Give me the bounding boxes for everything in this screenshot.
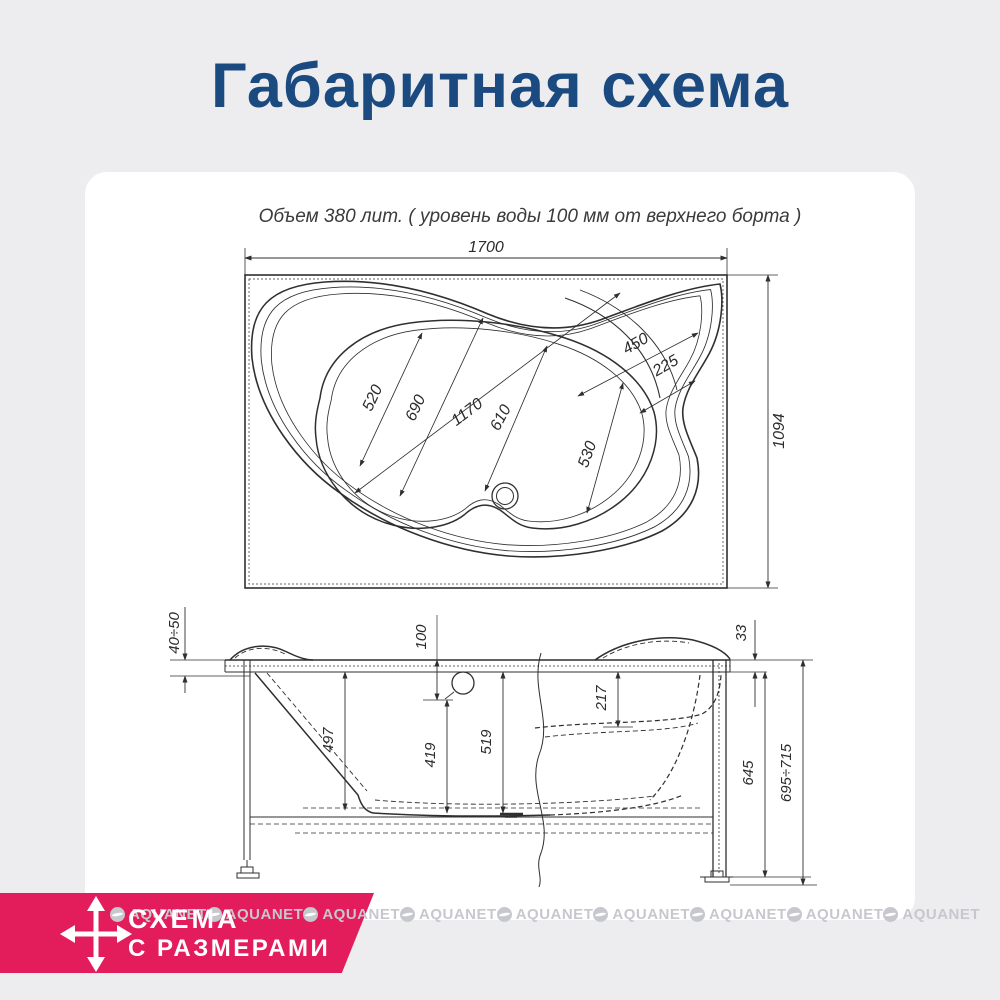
side-view-drawing: 40÷50 100 33 217 497 419: [155, 595, 865, 895]
aquanet-logo-icon: [497, 907, 512, 922]
watermark: AQUANET: [400, 906, 497, 923]
dim-419-label: 419: [422, 742, 439, 768]
dim-497-label: 497: [320, 727, 337, 753]
aquanet-logo-icon: [593, 907, 608, 922]
left-foot-icon: [237, 860, 259, 878]
dim-rim-thickness-label: 33: [733, 624, 750, 641]
diagram-card: Объем 380 лит. ( уровень воды 100 мм от …: [85, 172, 915, 920]
dim-645-label: 645: [740, 760, 757, 786]
page: Габаритная схема Объем 380 лит. ( уровен…: [0, 0, 1000, 1000]
badge-line1: СХЕМА: [128, 904, 330, 934]
dim-water-level-label: 100: [413, 624, 430, 650]
dim-1170-label: 1170: [448, 395, 486, 429]
aquanet-logo-icon: [690, 907, 705, 922]
dim-total-width-label: 1700: [468, 239, 504, 256]
overflow-icon: [452, 672, 474, 694]
watermark: AQUANET: [787, 906, 884, 923]
dim-610-label: 610: [487, 402, 515, 434]
watermark: AQUANET: [883, 906, 980, 923]
aquanet-logo-icon: [400, 907, 415, 922]
top-view-drawing: 1700 1094 520: [230, 238, 792, 600]
aquanet-logo-icon: [787, 907, 802, 922]
watermark: AQUANET: [497, 906, 594, 923]
move-arrows-icon: [60, 896, 132, 972]
watermark: AQUANET: [690, 906, 787, 923]
dim-530-label: 530: [575, 439, 600, 470]
badge-line2: С РАЗМЕРАМИ: [128, 934, 330, 964]
badge-text: СХЕМА С РАЗМЕРАМИ: [128, 904, 330, 964]
volume-note: Объем 380 лит. ( уровень воды 100 мм от …: [145, 206, 915, 228]
dim-total-height-label: 695÷715: [778, 743, 795, 802]
dim-217-label: 217: [593, 685, 610, 712]
aquanet-logo-icon: [883, 907, 898, 922]
dim-690-label: 690: [403, 392, 430, 423]
page-title: Габаритная схема: [0, 50, 1000, 122]
dim-total-depth-label: 1094: [771, 413, 788, 449]
dim-520-label: 520: [360, 382, 387, 413]
drain-icon: [492, 483, 518, 509]
watermark: AQUANET: [593, 906, 690, 923]
dim-rim-drop-label: 40÷50: [166, 612, 183, 654]
dim-519-label: 519: [478, 729, 495, 755]
